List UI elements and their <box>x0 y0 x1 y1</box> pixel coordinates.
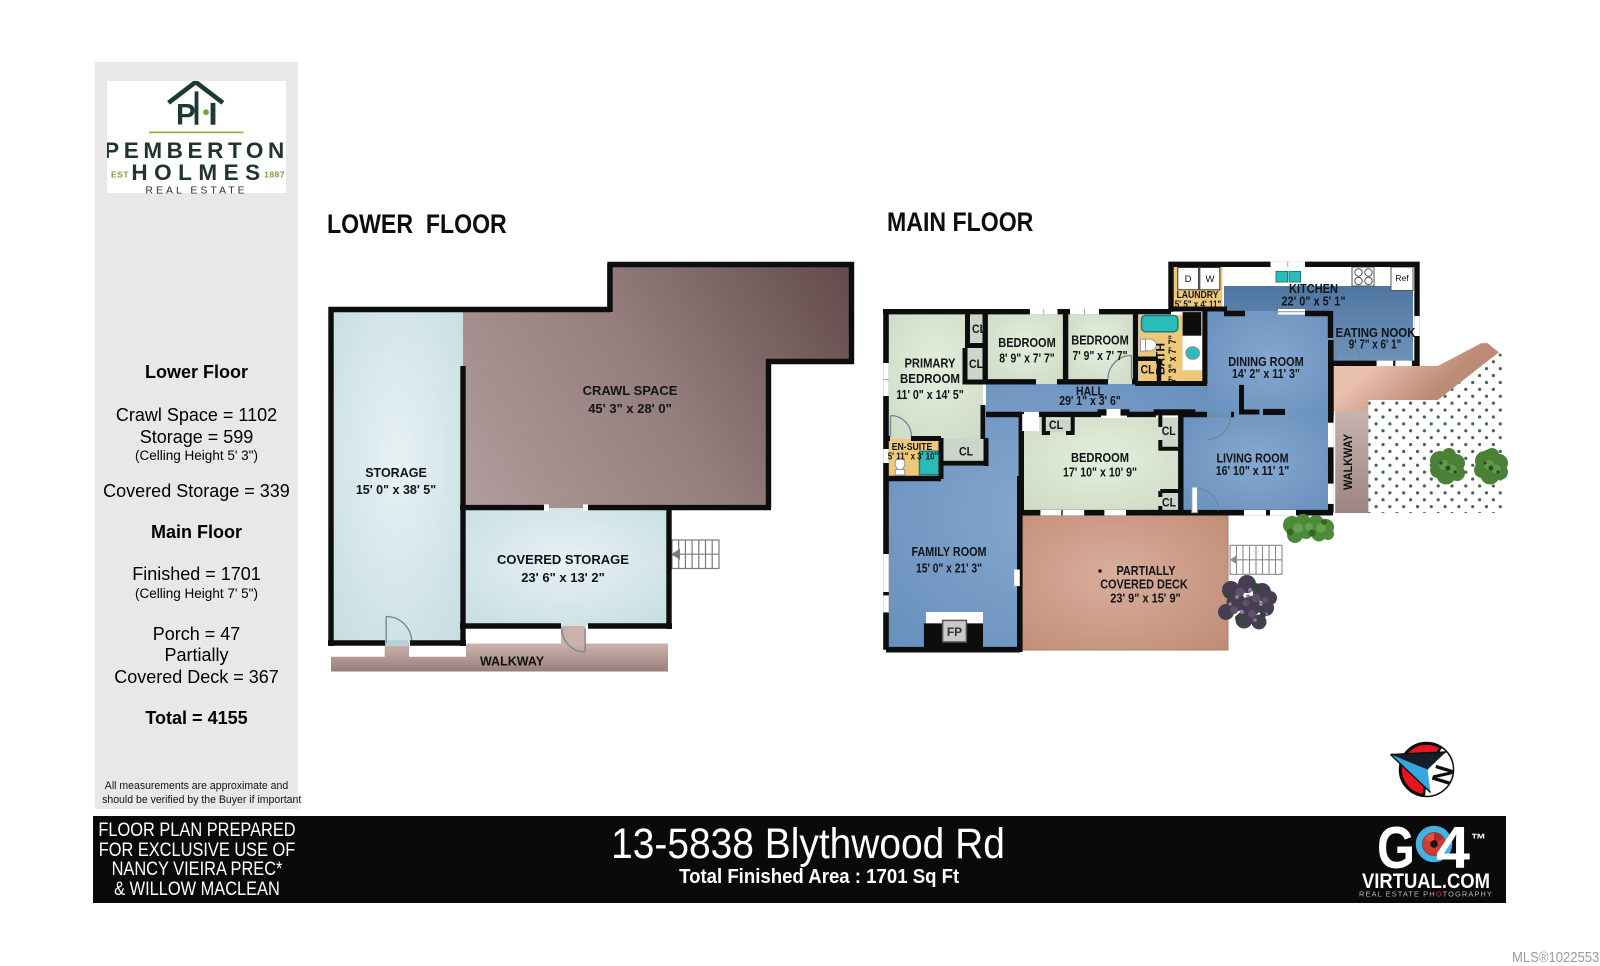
svg-text:W: W <box>1206 274 1215 285</box>
svg-text:™: ™ <box>1471 831 1486 848</box>
svg-text:BEDROOM: BEDROOM <box>1071 334 1129 348</box>
svg-text:BEDROOM: BEDROOM <box>998 336 1056 350</box>
svg-text:16' 10" x 11' 1": 16' 10" x 11' 1" <box>1216 464 1290 478</box>
svg-text:PRIMARY: PRIMARY <box>905 357 957 371</box>
svg-text:22' 0" x 5' 1": 22' 0" x 5' 1" <box>1282 295 1346 309</box>
svg-text:CL: CL <box>972 322 986 336</box>
svg-text:CL: CL <box>1162 495 1176 509</box>
svg-text:5' 5" x 4' 11": 5' 5" x 4' 11" <box>1175 299 1222 310</box>
svg-text:23' 6" x 13' 2": 23' 6" x 13' 2" <box>521 570 605 585</box>
svg-text:COVERED STORAGE: COVERED STORAGE <box>497 552 629 567</box>
svg-text:29' 1" x 3' 6": 29' 1" x 3' 6" <box>1059 394 1121 408</box>
svg-text:23' 9" x 15' 9": 23' 9" x 15' 9" <box>1110 592 1181 606</box>
svg-text:BATH: BATH <box>1154 343 1168 375</box>
svg-text:15' 0" x 38' 5": 15' 0" x 38' 5" <box>356 483 436 497</box>
svg-text:COVERED DECK: COVERED DECK <box>1100 578 1188 592</box>
svg-text:8' 9" x 7' 7": 8' 9" x 7' 7" <box>999 352 1055 366</box>
svg-text:FAMILY ROOM: FAMILY ROOM <box>912 545 987 559</box>
svg-text:CL: CL <box>969 357 983 371</box>
svg-text:14' 2" x 11' 3": 14' 2" x 11' 3" <box>1232 367 1300 381</box>
svg-text:Ref: Ref <box>1395 273 1409 283</box>
svg-text:15' 0" x 21' 3": 15' 0" x 21' 3" <box>916 562 982 576</box>
svg-text:7' 3" x 7' 7": 7' 3" x 7' 7" <box>1167 335 1179 383</box>
svg-text:BEDROOM: BEDROOM <box>1071 451 1129 465</box>
svg-text:11' 0" x 14' 5": 11' 0" x 14' 5" <box>896 388 964 402</box>
svg-text:CL: CL <box>1162 424 1176 438</box>
svg-text:45' 3" x 28' 0": 45' 3" x 28' 0" <box>588 401 672 416</box>
svg-text:WALKWAY: WALKWAY <box>480 655 545 669</box>
svg-text:REAL ESTATE PHOTOGRAPHY: REAL ESTATE PHOTOGRAPHY <box>1359 890 1493 899</box>
svg-text:CL: CL <box>959 445 973 459</box>
svg-text:CL: CL <box>1141 362 1155 376</box>
svg-text:17' 10" x 10' 9": 17' 10" x 10' 9" <box>1063 466 1137 480</box>
svg-text:PARTIALLY: PARTIALLY <box>1117 564 1177 578</box>
svg-text:WALKWAY: WALKWAY <box>1343 434 1355 490</box>
svg-text:7' 9" x 7' 7": 7' 9" x 7' 7" <box>1073 349 1128 363</box>
svg-text:D: D <box>1185 274 1192 285</box>
svg-text:FP: FP <box>947 625 962 639</box>
svg-text:CRAWL SPACE: CRAWL SPACE <box>583 383 678 398</box>
svg-text:CL: CL <box>1049 418 1063 432</box>
svg-text:5' 11" x 3' 10": 5' 11" x 3' 10" <box>888 452 939 463</box>
svg-text:BEDROOM: BEDROOM <box>900 372 960 386</box>
svg-text:9' 7" x 6' 1": 9' 7" x 6' 1" <box>1349 338 1402 352</box>
svg-text:STORAGE: STORAGE <box>365 466 427 480</box>
